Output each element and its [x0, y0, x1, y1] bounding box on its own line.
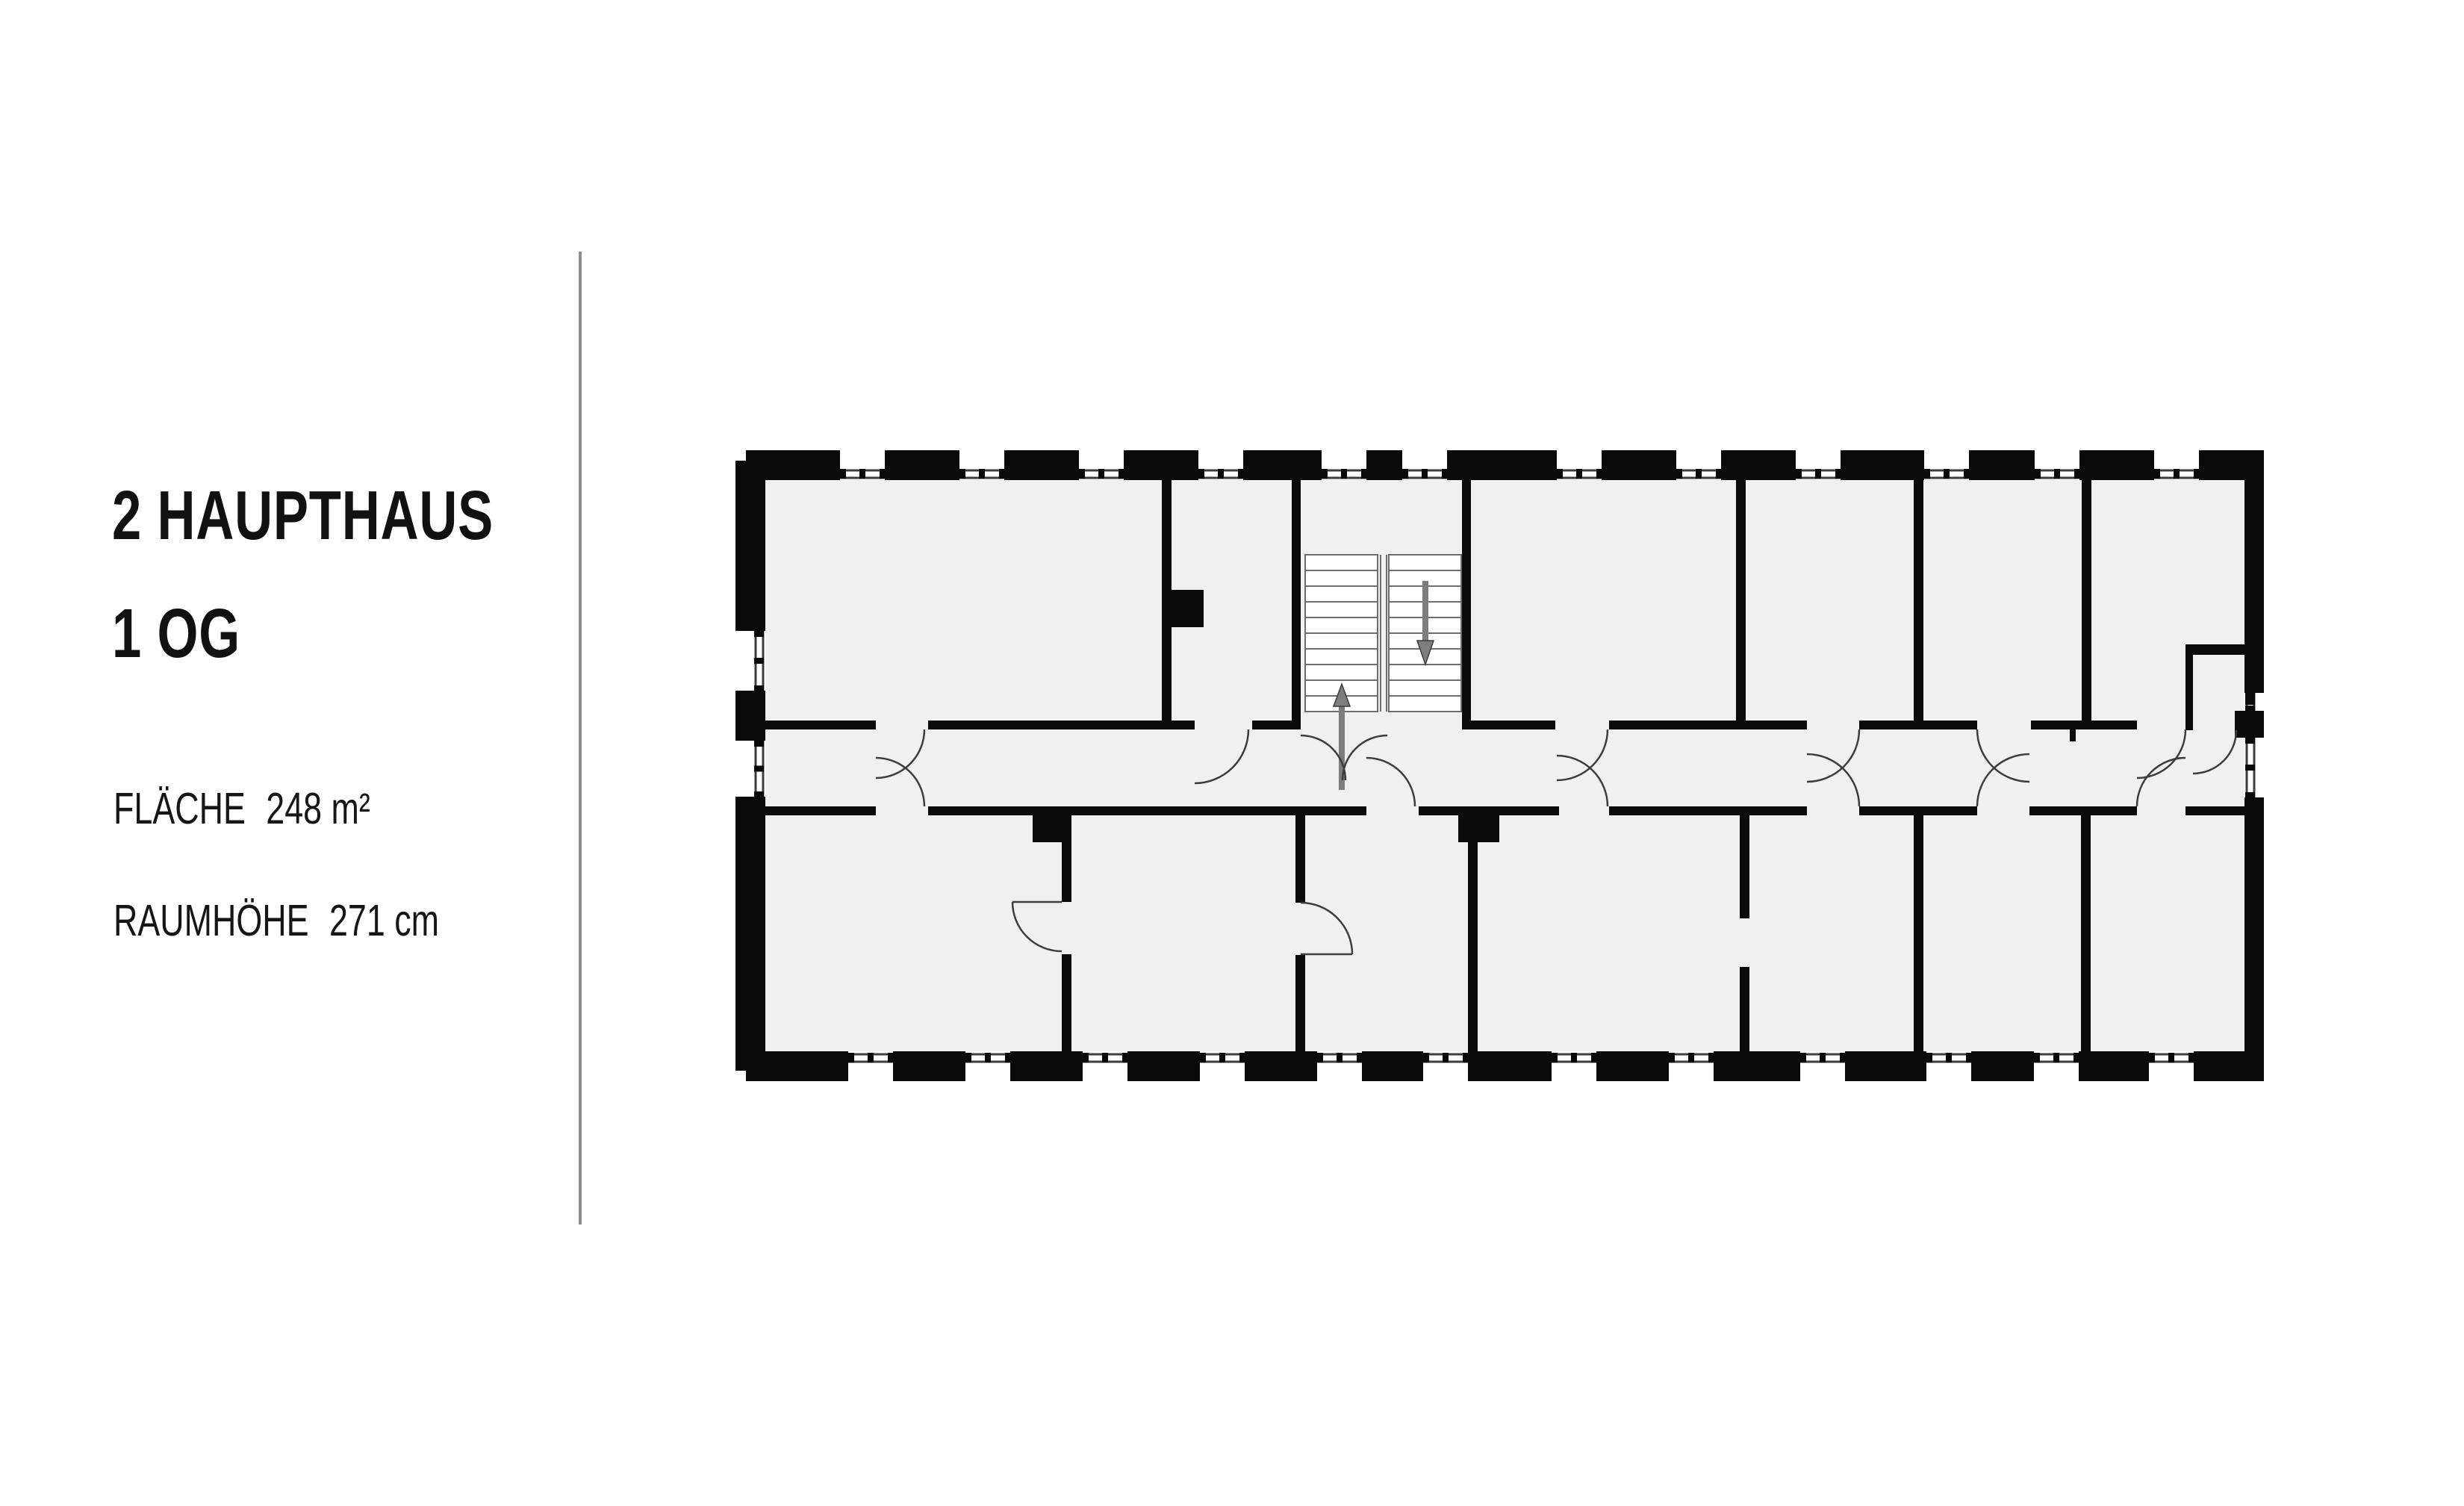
wall-pier	[1468, 1071, 1552, 1081]
interior-wall	[1609, 806, 1807, 815]
wall-pier	[2079, 450, 2154, 461]
window-mullion	[1815, 469, 1821, 479]
window-mullion	[1238, 469, 1244, 479]
window-mullion	[1708, 1053, 1714, 1062]
window-mullion	[979, 469, 985, 479]
window-mullion	[2245, 765, 2255, 771]
wall-pier	[1969, 450, 2035, 461]
window-mullion	[2174, 469, 2180, 479]
wall-pier	[1447, 450, 1557, 461]
interior-wall	[928, 806, 1366, 815]
window-mullion	[1688, 1053, 1694, 1062]
window-mullion	[1591, 1053, 1597, 1062]
window-mullion	[1557, 469, 1563, 479]
window-mullion	[1337, 1053, 1343, 1062]
wall-pier	[746, 450, 840, 461]
interior-wall	[1859, 806, 1977, 815]
wall-pier	[1010, 1071, 1083, 1081]
wall-pier	[2199, 450, 2264, 461]
window-mullion	[1946, 1053, 1952, 1062]
interior-wall	[1471, 721, 1555, 729]
wall-pier	[1602, 450, 1676, 461]
window-mullion	[1423, 1053, 1429, 1062]
window-mullion	[1552, 1053, 1558, 1062]
wall-pier	[1127, 1071, 1200, 1081]
interior-wall	[1740, 967, 1749, 1051]
window-mullion	[1317, 1053, 1323, 1062]
window-mullion	[2168, 1053, 2174, 1062]
wall-pier	[1596, 1071, 1669, 1081]
window-mullion	[1218, 469, 1224, 479]
interior-wall	[928, 721, 1195, 729]
interior-wall	[1859, 721, 1977, 729]
window-mullion	[1835, 469, 1841, 479]
wall-pier	[1841, 450, 1924, 461]
window-mullion	[2245, 693, 2255, 699]
interior-wall	[2235, 711, 2264, 738]
window-mullion	[754, 791, 764, 797]
window-mullion	[1219, 1053, 1225, 1062]
window-mullion	[1840, 1053, 1846, 1062]
window-mullion	[2245, 792, 2255, 798]
window-mullion	[999, 469, 1005, 479]
wall-pier	[735, 461, 746, 631]
window-mullion	[1966, 1053, 1972, 1062]
interior-wall	[1609, 721, 1807, 729]
floor-plan-svg	[0, 0, 2464, 1506]
window-mullion	[1005, 1053, 1011, 1062]
window-mullion	[959, 469, 965, 479]
window-mullion	[1716, 469, 1722, 479]
window-mullion	[1571, 1053, 1577, 1062]
window-mullion	[1820, 1053, 1826, 1062]
window-mullion	[1361, 469, 1367, 479]
window-mullion	[754, 741, 764, 747]
window-mullion	[2245, 738, 2255, 744]
interior-wall	[2185, 644, 2244, 655]
window-mullion	[1322, 469, 1328, 479]
wall-pier	[2079, 1071, 2149, 1081]
window-mullion	[1098, 469, 1104, 479]
window-mullion	[1119, 469, 1124, 479]
window-mullion	[1800, 1053, 1806, 1062]
window-mullion	[2245, 699, 2255, 705]
window-mullion	[1964, 469, 1970, 479]
window-mullion	[1102, 1053, 1108, 1062]
window-mullion	[2034, 1053, 2040, 1062]
wall-pier	[1366, 450, 1402, 461]
window-mullion	[754, 658, 764, 664]
window-mullion	[1676, 469, 1682, 479]
window-mullion	[2054, 469, 2060, 479]
interior-wall	[2082, 480, 2091, 721]
window-mullion	[1944, 469, 1950, 479]
window-mullion	[2073, 1053, 2079, 1062]
interior-wall	[1740, 815, 1749, 918]
interior-wall	[2185, 806, 2244, 815]
window-mullion	[888, 1053, 894, 1062]
interior-wall	[1736, 480, 1746, 721]
window-mullion	[2154, 469, 2160, 479]
interior-wall	[1295, 815, 1305, 903]
interior-wall	[2029, 806, 2137, 815]
window-mullion	[2053, 1053, 2059, 1062]
interior-wall	[1292, 480, 1301, 729]
window-mullion	[1341, 469, 1347, 479]
interior-wall	[1295, 955, 1305, 1051]
wall-pier	[1714, 1071, 1800, 1081]
window-mullion	[754, 685, 764, 691]
interior-wall	[765, 721, 876, 729]
window-mullion	[868, 1053, 874, 1062]
window-mullion	[1669, 1053, 1675, 1062]
wall-pier	[1124, 450, 1198, 461]
window-mullion	[840, 469, 846, 479]
window-mullion	[880, 469, 886, 479]
window-mullion	[2245, 706, 2255, 712]
wall-pier	[893, 1071, 965, 1081]
wall-pier	[1721, 450, 1796, 461]
window-mullion	[1083, 1053, 1089, 1062]
window-mullion	[1596, 469, 1602, 479]
wall-pier	[1845, 1071, 1926, 1081]
window-mullion	[1442, 469, 1448, 479]
floor-plan	[0, 0, 2464, 1506]
interior-wall	[1166, 590, 1204, 627]
interior-wall	[1062, 954, 1071, 1051]
window-mullion	[1079, 469, 1085, 479]
window-mullion	[2074, 469, 2080, 479]
wall-pier	[746, 1071, 848, 1081]
wall-pier	[2194, 1071, 2264, 1081]
window-mullion	[1200, 1053, 1206, 1062]
wall-pier	[735, 691, 746, 741]
window-mullion	[859, 469, 865, 479]
window-mullion	[1696, 469, 1702, 479]
interior-wall	[1252, 721, 1292, 729]
interior-wall	[1914, 815, 1923, 1051]
wall-pier	[1245, 1071, 1317, 1081]
window-mullion	[754, 766, 764, 772]
window-mullion	[1357, 1053, 1363, 1062]
interior-wall	[1468, 815, 1478, 1051]
window-mullion	[2149, 1053, 2155, 1062]
wall-pier	[1362, 1071, 1423, 1081]
window-mullion	[1122, 1053, 1128, 1062]
window-mullion	[1576, 469, 1582, 479]
interior-wall	[2185, 655, 2193, 730]
window-mullion	[1463, 1053, 1469, 1062]
window-mullion	[754, 631, 764, 637]
window-mullion	[2188, 1053, 2194, 1062]
wall-pier	[1971, 1071, 2034, 1081]
window-mullion	[1443, 1053, 1449, 1062]
wall-pier	[885, 450, 959, 461]
window-mullion	[1402, 469, 1408, 479]
building-interior	[765, 480, 2244, 1051]
interior-wall	[2081, 815, 2091, 1051]
window-mullion	[1422, 469, 1428, 479]
interior-wall	[765, 806, 876, 815]
window-mullion	[2035, 469, 2041, 479]
interior-wall	[1914, 480, 1923, 721]
window-mullion	[1924, 469, 1930, 479]
interior-wall	[1033, 815, 1071, 842]
interior-wall	[1462, 480, 1471, 729]
window-mullion	[1239, 1053, 1245, 1062]
interior-wall	[2031, 721, 2137, 729]
window-mullion	[965, 1053, 971, 1062]
window-mullion	[985, 1053, 991, 1062]
wall-pier	[1004, 450, 1079, 461]
interior-wall	[1458, 806, 1499, 842]
window-mullion	[2194, 469, 2200, 479]
window-mullion	[1796, 469, 1802, 479]
window-mullion	[848, 1053, 854, 1062]
window-mullion	[1926, 1053, 1932, 1062]
wall-pier	[735, 797, 746, 1071]
interior-wall	[2070, 729, 2076, 741]
wall-pier	[1243, 450, 1322, 461]
window-mullion	[1198, 469, 1204, 479]
